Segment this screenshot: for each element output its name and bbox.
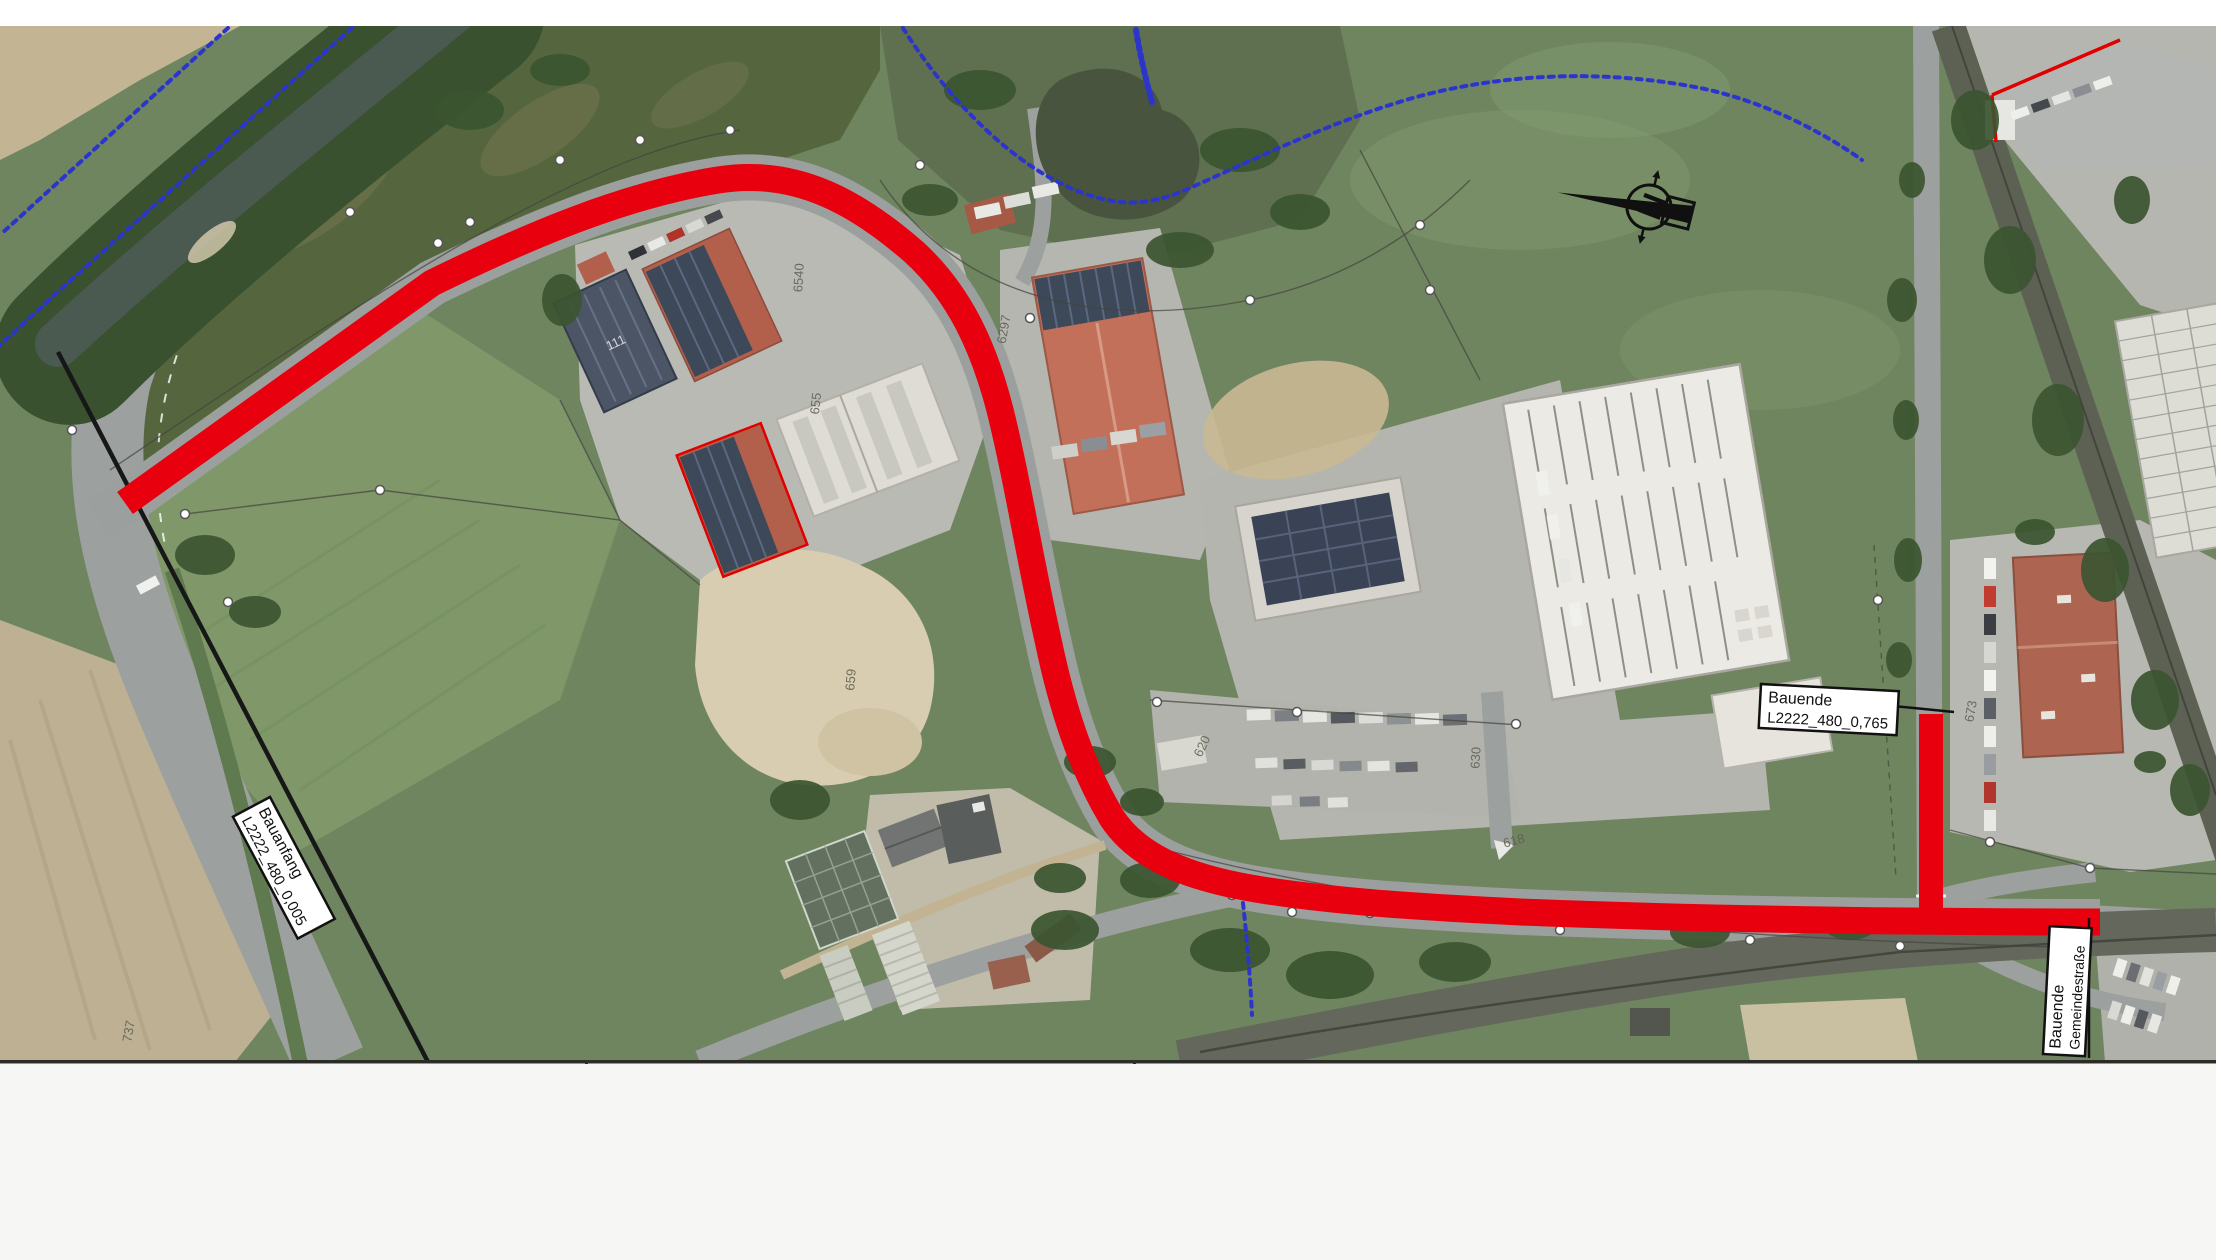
right-margin	[2216, 0, 2221, 1260]
svg-text:Bauende: Bauende	[2047, 984, 2067, 1049]
map-bottom-border	[0, 1060, 2216, 1064]
svg-text:Bauende: Bauende	[1768, 689, 1833, 709]
label-construction-end-municipal: Bauende Gemeindestraße	[2043, 926, 2092, 1056]
plan-page: 111	[0, 0, 2221, 1260]
top-margin	[0, 0, 2221, 26]
bottom-margin	[0, 1064, 2221, 1260]
label-construction-end-road: Bauende L2222_480_0,765	[1759, 684, 1899, 735]
aerial-basemap: 111	[0, 10, 2221, 1062]
svg-text:655: 655	[807, 392, 824, 415]
svg-text:6540: 6540	[790, 263, 806, 293]
aerial-plan-map: 111	[0, 0, 2221, 1260]
svg-text:659: 659	[842, 668, 858, 691]
svg-text:630: 630	[1467, 747, 1483, 769]
building-large-warehouse	[1503, 364, 1789, 699]
